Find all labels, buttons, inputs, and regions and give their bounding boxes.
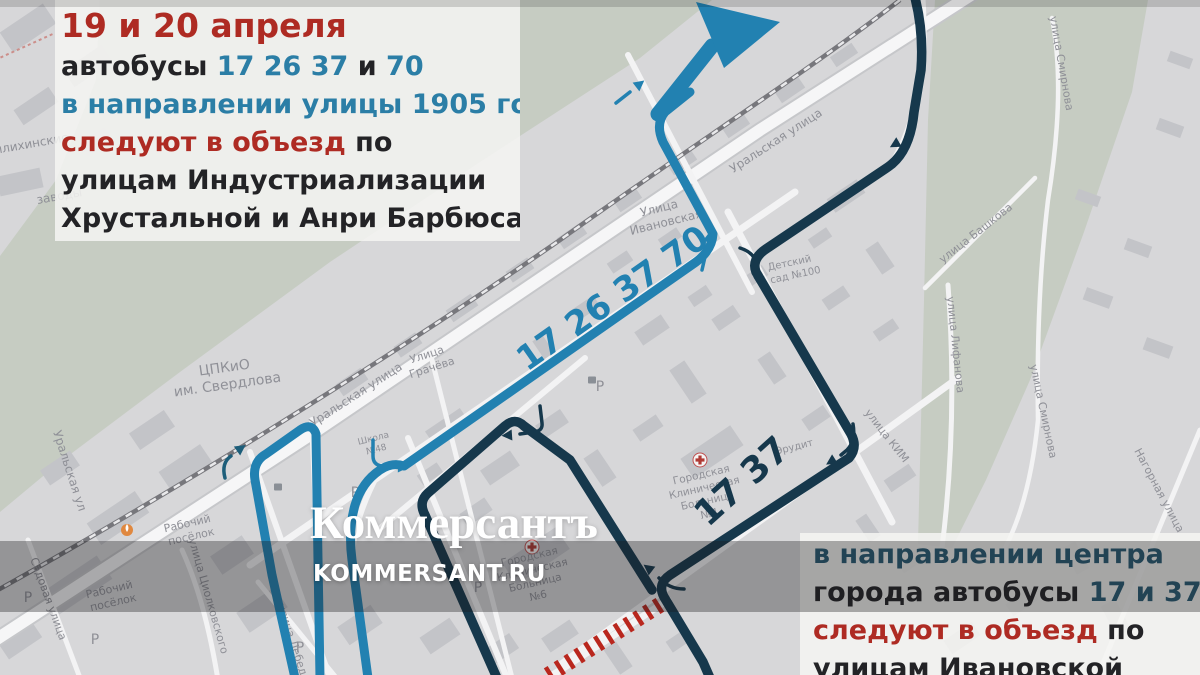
- note-text-segment: улицам Индустриализации: [61, 165, 486, 196]
- shop-icon: [274, 484, 282, 491]
- dark-band: [0, 541, 1200, 612]
- street-label: Р: [296, 640, 304, 656]
- note-text-segment: Хрустальной и Анри Барбюса: [61, 203, 520, 234]
- note-text-segment: 70: [386, 51, 424, 82]
- note-line: следуют в объезд по: [61, 124, 520, 162]
- note-text-segment: следуют в объезд: [813, 615, 1098, 646]
- note-line: улицам Индустриализации: [61, 162, 520, 200]
- top-shade-strip: [0, 0, 1200, 7]
- note-text-segment: по: [346, 127, 393, 158]
- note-text-segment: 19 и 20 апреля: [61, 6, 347, 45]
- note-line: следуют в объезд по: [813, 612, 1200, 650]
- note-text-segment: по: [1098, 615, 1145, 646]
- note-line: Хрустальной и Анри Барбюса: [61, 200, 520, 238]
- note-line: автобусы 17 26 37 и 70: [61, 48, 520, 86]
- note-text-segment: и: [348, 51, 386, 82]
- fire-station-icon: [121, 524, 133, 536]
- street-label: Р: [596, 379, 604, 395]
- note-text-segment: следуют в объезд: [61, 127, 346, 158]
- infographic-bus-detour-map: ЦПКиОим. СвердловаУральская улицаУральск…: [0, 0, 1200, 675]
- street-label: Р: [91, 632, 99, 648]
- note-line: улицам Ивановской: [813, 650, 1200, 675]
- hospital-icon: [693, 453, 707, 467]
- kommersant-site-url: KOMMERSANT.RU: [313, 561, 546, 587]
- note-line: в направлении улицы 1905 года: [61, 86, 520, 124]
- note-text-segment: 17 26 37: [217, 51, 349, 82]
- note-text-segment: улицам Ивановской: [813, 653, 1123, 675]
- detour-note-top: 19 и 20 апреляавтобусы 17 26 37 и 70в на…: [55, 0, 520, 241]
- kommersant-logo: Коммерсантъ: [310, 496, 598, 550]
- note-line: 19 и 20 апреля: [61, 4, 520, 48]
- note-text-segment: в направлении улицы 1905 года: [61, 89, 520, 120]
- note-text-segment: автобусы: [61, 51, 217, 82]
